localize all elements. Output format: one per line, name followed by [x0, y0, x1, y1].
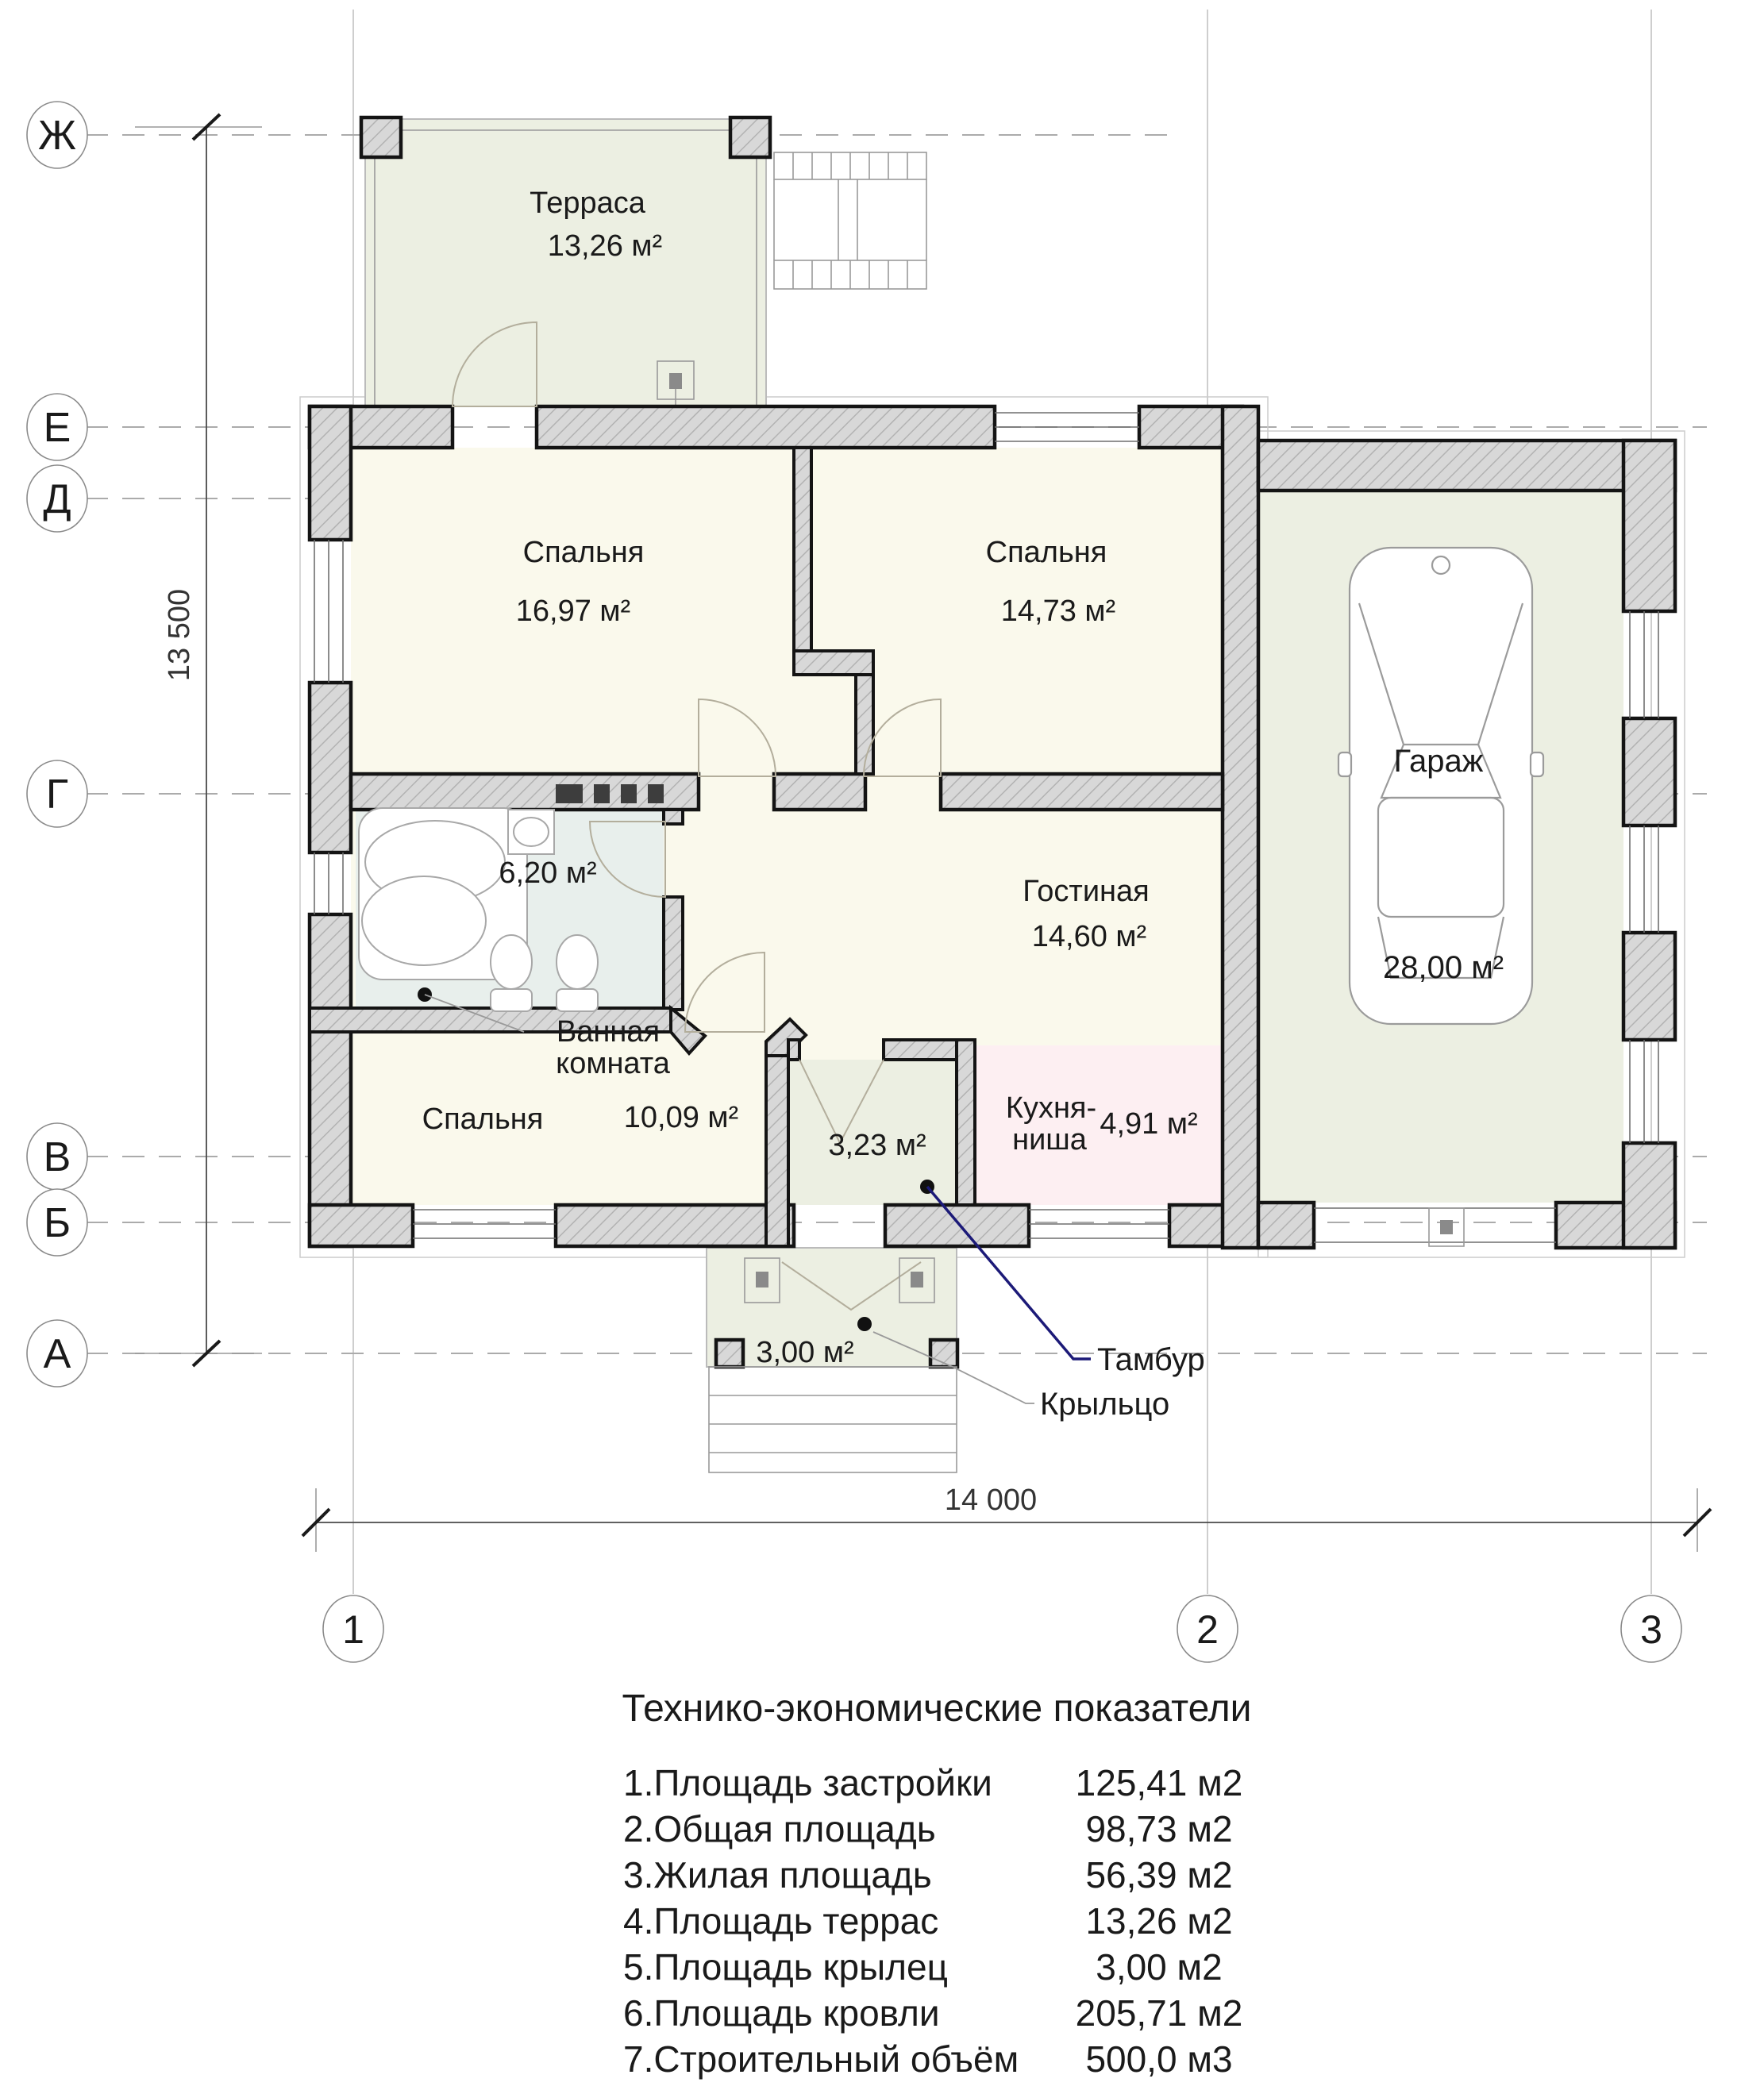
window-bathroom-left — [314, 853, 343, 914]
room-label-bedroom3-name: Спальня — [422, 1103, 544, 1136]
room-label-porch-area: 3,00 м² — [756, 1336, 853, 1369]
terrace-post — [730, 117, 770, 157]
table-row-value: 56,39 м2 — [1085, 1854, 1232, 1896]
room-label-living-area: 14,60 м² — [1032, 920, 1146, 953]
room-label-bathroom-callout1: Ванная — [557, 1015, 660, 1049]
table-row-label: 5.Площадь крылец — [623, 1946, 948, 1988]
axis-row-label: В — [44, 1134, 71, 1180]
axis-col-label: 2 — [1196, 1607, 1219, 1652]
dimension-vertical: 13 500 — [135, 114, 262, 1366]
garage-drain-icon — [1429, 1208, 1464, 1246]
callout-tambur: Тамбур — [1097, 1342, 1205, 1377]
terrace-stairs — [774, 152, 926, 289]
table-row-value: 125,41 м2 — [1076, 1762, 1243, 1803]
axis-col-bubbles: 1 2 3 — [323, 1595, 1681, 1662]
room-label-kitchen-area: 4,91 м² — [1100, 1107, 1197, 1141]
terrace-post — [361, 117, 401, 157]
room-label-bedroom3-area: 10,09 м² — [624, 1101, 738, 1134]
axis-col-label: 3 — [1640, 1607, 1662, 1652]
table-row-value: 13,26 м2 — [1085, 1900, 1232, 1942]
table-title: Технико-экономические показатели — [622, 1688, 1251, 1730]
room-label-terrace-area: 13,26 м² — [548, 229, 662, 263]
table-row-label: 7.Строительный объём — [623, 2038, 1019, 2080]
table-row-label: 6.Площадь кровли — [623, 1992, 940, 2034]
table-row-label: 4.Площадь террас — [623, 1900, 938, 1942]
room-label-garage-area: 28,00 м² — [1383, 950, 1504, 985]
room-label-garage-name: Гараж — [1394, 744, 1484, 779]
room-label-bedroom2-name: Спальня — [986, 536, 1107, 569]
summary-table: Технико-экономические показатели 1.Площа… — [622, 1688, 1251, 2080]
windows-garage-right — [1630, 611, 1658, 1143]
axis-row-label: Ж — [38, 113, 76, 159]
table-row-value: 3,00 м2 — [1096, 1946, 1223, 1988]
room-label-bedroom2-area: 14,73 м² — [1001, 595, 1115, 628]
table-row-label: 1.Площадь застройки — [623, 1762, 992, 1803]
window-bedroom1-left — [314, 540, 343, 683]
toilet-icon — [557, 935, 598, 1011]
room-label-living-name: Гостиная — [1023, 875, 1150, 908]
dimension-horizontal: 14 000 — [302, 1484, 1711, 1552]
porch-column — [716, 1340, 743, 1367]
window-bedroom2-top — [995, 413, 1139, 441]
axis-row-label: Б — [44, 1200, 71, 1246]
terrace-floor — [365, 119, 766, 406]
callout-krylco: Крыльцо — [1040, 1387, 1169, 1422]
toilet-icon — [491, 935, 532, 1011]
porch-steps — [709, 1367, 957, 1472]
axis-row-label: А — [44, 1331, 71, 1377]
table-row-value: 205,71 м2 — [1076, 1992, 1243, 2034]
table-row-value: 98,73 м2 — [1085, 1808, 1232, 1849]
axis-row-label: Г — [46, 772, 68, 818]
axis-row-label: Е — [44, 405, 71, 451]
axis-row-label: Д — [43, 476, 71, 522]
room-label-bedroom1-name: Спальня — [523, 536, 645, 569]
room-label-kitchen-name1: Кухня- — [1006, 1091, 1096, 1125]
room-label-vestibule-area: 3,23 м² — [828, 1129, 926, 1162]
axis-row-bubbles: Ж Е Д Г В Б А — [27, 102, 87, 1387]
floor-plan-drawing: 13 500 14 000 Ж Е Д Г В Б А 1 2 3 — [0, 0, 1764, 2090]
axis-col-label: 1 — [342, 1607, 364, 1652]
dim-height-label: 13 500 — [163, 589, 196, 681]
window-bedroom3-bottom — [413, 1210, 556, 1238]
room-label-terrace-name: Терраса — [530, 187, 646, 220]
porch-dot — [857, 1317, 872, 1331]
dim-width-label: 14 000 — [945, 1484, 1037, 1517]
sink-icon — [508, 810, 554, 854]
room-label-bathroom-area: 6,20 м² — [499, 856, 596, 890]
table-row-label: 2.Общая площадь — [623, 1808, 936, 1849]
room-label-bathroom-callout2: комната — [556, 1047, 671, 1080]
window-kitchen-bottom — [1029, 1210, 1169, 1238]
room-label-kitchen-name2: ниша — [1012, 1123, 1088, 1157]
table-row-value: 500,0 м3 — [1085, 2038, 1232, 2080]
table-row-label: 3.Жилая площадь — [623, 1854, 932, 1896]
room-label-bedroom1-area: 16,97 м² — [516, 595, 630, 628]
